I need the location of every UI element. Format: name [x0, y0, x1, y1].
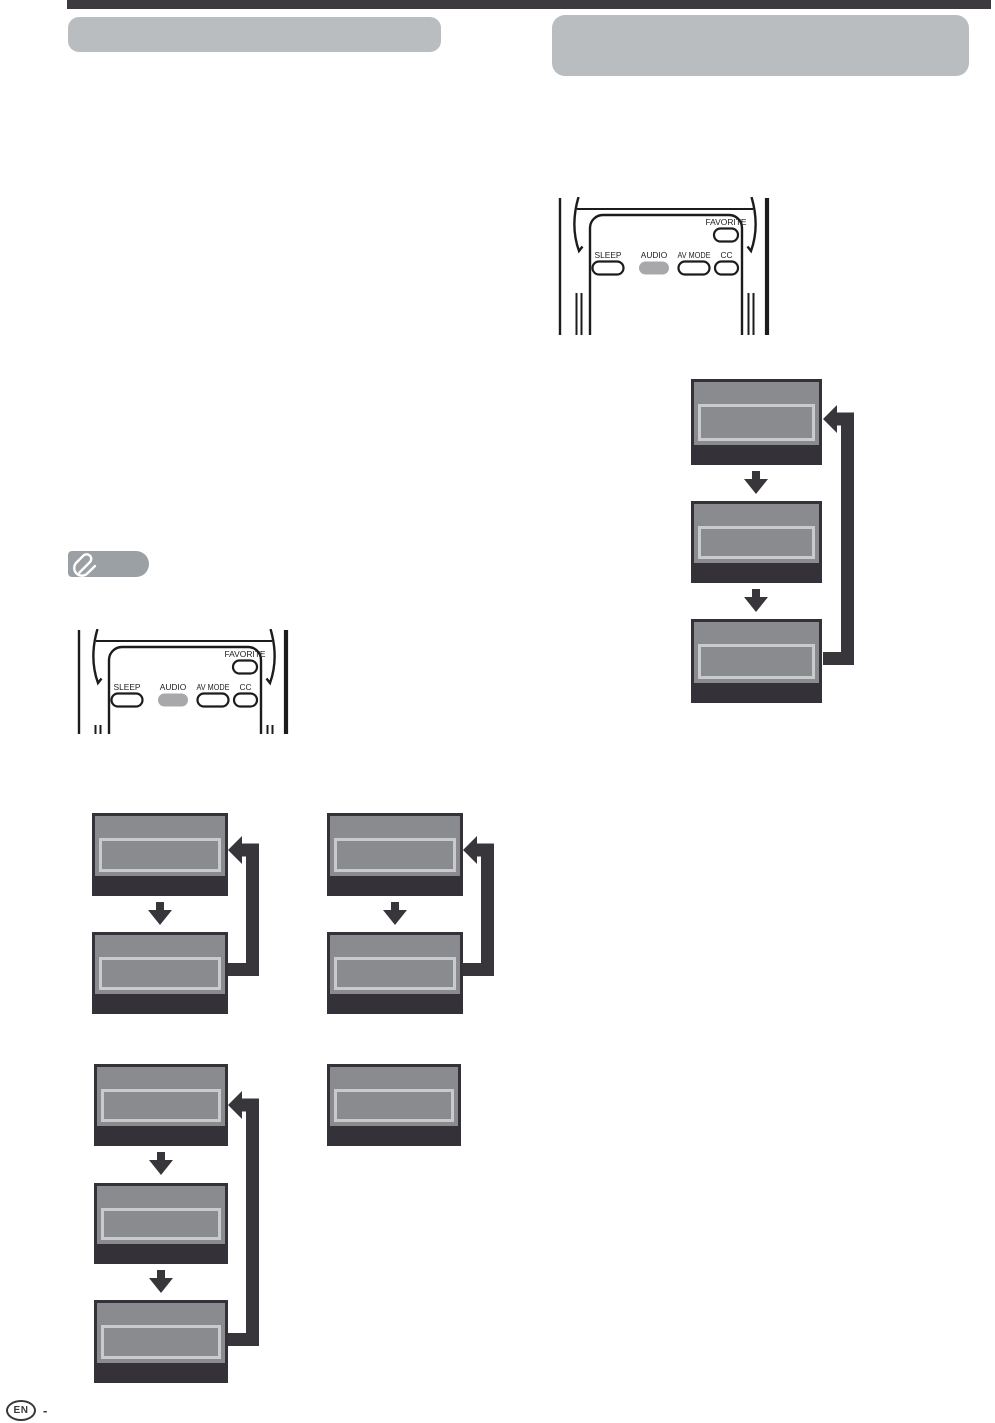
av-mode-button — [198, 694, 229, 707]
cycle-loop-arrow-icon — [228, 1091, 259, 1346]
note-badge — [68, 551, 149, 577]
osd-box — [327, 932, 463, 1014]
language-badge: EN — [6, 1400, 36, 1421]
section-header-left — [68, 17, 441, 52]
down-arrow-icon — [148, 902, 172, 925]
osd-box — [691, 619, 822, 703]
cycle-loop-arrow-icon — [463, 836, 494, 976]
osd-box — [94, 1183, 228, 1264]
down-arrow-icon — [383, 902, 407, 925]
osd-box — [92, 932, 228, 1014]
down-arrow-icon — [744, 471, 768, 494]
cc-button-label: CC — [720, 250, 732, 260]
audio-button-highlighted — [639, 262, 669, 275]
down-arrow-icon — [149, 1152, 173, 1175]
sleep-button — [593, 262, 624, 275]
cycle-loop-arrow-icon — [228, 836, 259, 976]
cc-button — [234, 694, 257, 707]
av-mode-button-label: AV MODE — [678, 251, 711, 260]
osd-box — [94, 1300, 228, 1383]
cc-button — [715, 262, 738, 275]
down-arrow-icon — [744, 589, 768, 612]
av-mode-button-label: AV MODE — [197, 683, 230, 692]
section-header-right — [552, 15, 969, 76]
osd-box — [94, 1064, 228, 1146]
page-top-rule — [67, 0, 991, 9]
favorite-button — [233, 661, 257, 674]
audio-button-highlighted — [158, 694, 188, 707]
down-arrow-icon — [149, 1270, 173, 1293]
sleep-button-label: SLEEP — [594, 250, 621, 260]
av-mode-button — [679, 262, 710, 275]
sleep-button — [112, 694, 143, 707]
osd-box — [691, 501, 822, 583]
osd-box — [327, 1064, 461, 1146]
paperclip-icon — [71, 551, 103, 577]
cycle-loop-arrow-icon — [823, 405, 854, 665]
remote-control-illustration-left: FAVORITE SLEEP AUDIO AV MODE CC — [76, 629, 292, 734]
osd-box — [92, 813, 228, 896]
audio-button-label: AUDIO — [641, 250, 668, 260]
favorite-button-label: FAVORITE — [225, 649, 266, 659]
sleep-button-label: SLEEP — [113, 682, 140, 692]
osd-box — [327, 813, 463, 896]
osd-box — [691, 379, 822, 465]
page-footer: EN - — [6, 1400, 47, 1421]
manual-page: FAVORITE SLEEP AUDIO AV MODE CC — [0, 0, 995, 1423]
favorite-button-label: FAVORITE — [706, 217, 747, 227]
favorite-button — [714, 229, 738, 242]
cc-button-label: CC — [239, 682, 251, 692]
audio-button-label: AUDIO — [160, 682, 187, 692]
page-number-separator: - — [43, 1402, 47, 1419]
remote-control-illustration-right: FAVORITE SLEEP AUDIO AV MODE CC — [557, 197, 773, 335]
